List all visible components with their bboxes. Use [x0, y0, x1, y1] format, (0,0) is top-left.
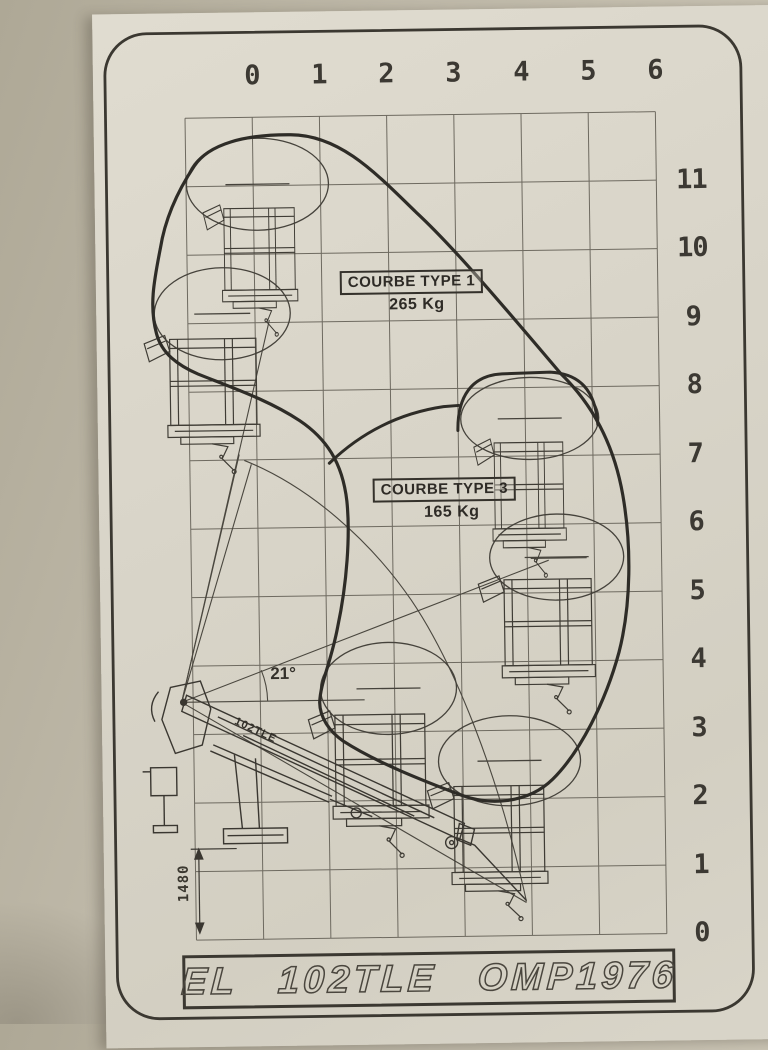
- photo-of-load-chart: { "photo": { "wall_color": "#bfb9a9", "s…: [0, 0, 768, 1024]
- curve-type1-load: 265 Kg: [389, 296, 445, 315]
- x-axis-label-3: 3: [438, 57, 468, 88]
- title-plate: EL 102TLE OMP1976: [182, 948, 676, 1009]
- y-axis-label-8: 8: [672, 369, 716, 401]
- title-plate-text: EL 102TLE OMP1976: [180, 954, 678, 1004]
- y-axis-label-5: 5: [675, 575, 719, 607]
- curve-type1-label: COURBE TYPE 1: [340, 269, 484, 295]
- basket-left: [144, 334, 261, 475]
- height-dimension-label: 1480: [176, 864, 193, 902]
- curve-type3-load: 165 Kg: [424, 503, 480, 522]
- load-chart-sticker: 0 1 2 3 4 5 6 11 10 9 8 7 6 5 4 3 2 1 0 …: [92, 5, 768, 1049]
- basket-swing-circles: [152, 133, 627, 810]
- x-axis-label-2: 2: [371, 58, 401, 89]
- y-axis-label-2: 2: [678, 780, 722, 812]
- x-axis-label-0: 0: [237, 60, 267, 91]
- x-axis-label-5: 5: [573, 55, 603, 86]
- y-axis-label-1: 1: [679, 849, 723, 881]
- y-axis-label-9: 9: [671, 301, 715, 333]
- envelope-curve-type3: [328, 372, 598, 464]
- basket-top-left: [203, 204, 298, 337]
- y-axis-label-10: 10: [670, 232, 714, 264]
- working-envelope-diagram: [0, 0, 768, 1030]
- basket-right: [478, 575, 596, 716]
- grid: [185, 112, 667, 940]
- y-axis-label-11: 11: [669, 164, 713, 196]
- y-axis-label-3: 3: [677, 712, 721, 744]
- x-axis-label-6: 6: [640, 54, 670, 85]
- y-axis-label-7: 7: [673, 438, 717, 470]
- y-axis-label-4: 4: [676, 643, 720, 675]
- x-axis-label-1: 1: [304, 59, 334, 90]
- curve-type3-label: COURBE TYPE 3: [373, 477, 517, 503]
- boom-angle-label: 21°: [270, 664, 296, 684]
- y-axis-label-6: 6: [674, 506, 718, 538]
- height-dimension-lines: [191, 849, 238, 934]
- y-axis-label-0: 0: [680, 917, 724, 949]
- x-axis-label-4: 4: [506, 56, 536, 87]
